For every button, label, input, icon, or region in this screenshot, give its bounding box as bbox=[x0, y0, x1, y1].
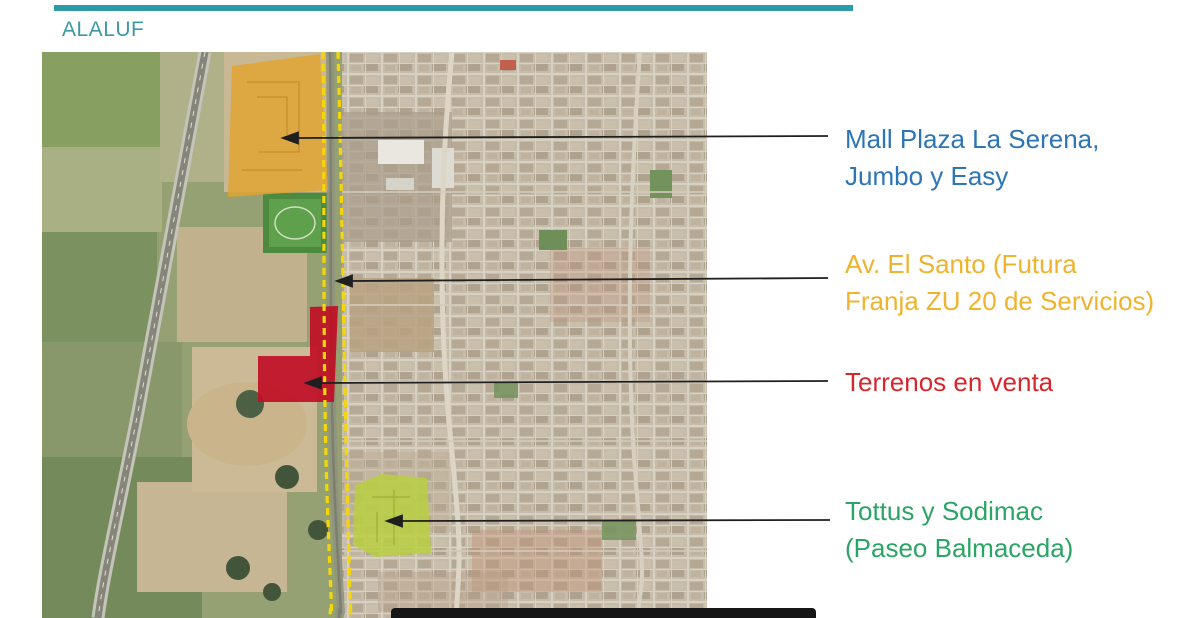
label-mall-plaza-line2: Jumbo y Easy bbox=[845, 158, 1099, 195]
label-terrenos-en-venta-line1: Terrenos en venta bbox=[845, 364, 1053, 401]
tottus-sodimac-overlay bbox=[353, 474, 431, 557]
label-mall-plaza: Mall Plaza La Serena, Jumbo y Easy bbox=[845, 121, 1099, 195]
slide: ALALUF bbox=[0, 0, 1200, 618]
satellite-map-image bbox=[42, 52, 707, 618]
page-title: ALALUF bbox=[62, 18, 144, 42]
label-tottus-sodimac-line1: Tottus y Sodimac bbox=[845, 493, 1073, 530]
mall-plaza-overlay bbox=[228, 54, 328, 197]
label-av-el-santo-line2: Franja ZU 20 de Servicios) bbox=[845, 283, 1154, 320]
mall-plaza-polygon bbox=[228, 54, 328, 197]
label-mall-plaza-line1: Mall Plaza La Serena, bbox=[845, 121, 1099, 158]
label-terrenos-en-venta: Terrenos en venta bbox=[845, 364, 1053, 401]
sports-field bbox=[263, 193, 327, 253]
label-tottus-sodimac: Tottus y Sodimac (Paseo Balmaceda) bbox=[845, 493, 1073, 567]
bottom-bar bbox=[391, 608, 816, 618]
label-av-el-santo-line1: Av. El Santo (Futura bbox=[845, 246, 1154, 283]
label-tottus-sodimac-line2: (Paseo Balmaceda) bbox=[845, 530, 1073, 567]
label-av-el-santo: Av. El Santo (Futura Franja ZU 20 de Ser… bbox=[845, 246, 1154, 320]
tottus-sodimac-polygon bbox=[353, 474, 431, 557]
satellite-map bbox=[42, 52, 707, 618]
accent-bar bbox=[54, 5, 853, 11]
